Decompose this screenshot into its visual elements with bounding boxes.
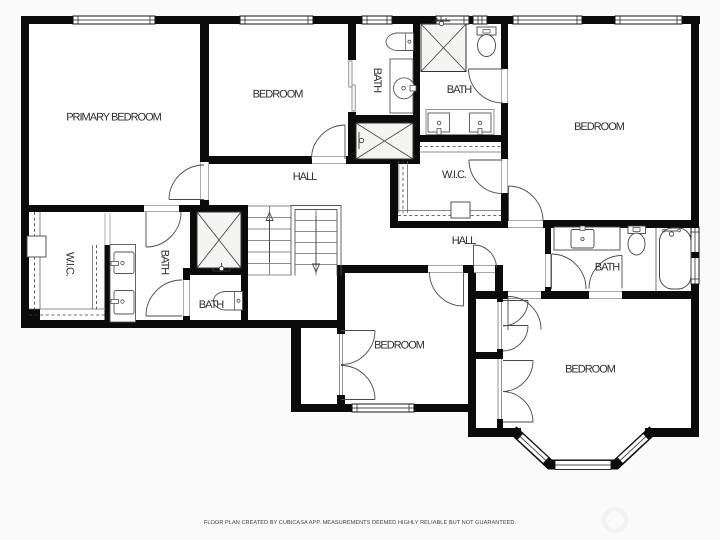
svg-text:BEDROOM: BEDROOM xyxy=(253,89,304,101)
svg-text:W.I.C.: W.I.C. xyxy=(442,169,467,181)
svg-text:HALL: HALL xyxy=(452,235,476,247)
svg-text:W.I.C.: W.I.C. xyxy=(64,252,76,277)
svg-text:BATH: BATH xyxy=(371,68,383,94)
svg-text:BATH: BATH xyxy=(199,299,225,311)
svg-text:BEDROOM: BEDROOM xyxy=(574,121,625,133)
svg-text:BEDROOM: BEDROOM xyxy=(565,364,616,376)
svg-text:BEDROOM: BEDROOM xyxy=(374,340,425,352)
svg-text:BATH: BATH xyxy=(447,84,473,96)
svg-text:PRIMARY BEDROOM: PRIMARY BEDROOM xyxy=(66,112,161,124)
svg-text:BATH: BATH xyxy=(595,262,621,274)
svg-text:BATH: BATH xyxy=(159,250,171,276)
svg-text:FLOOR PLAN CREATED BY CUBICASA: FLOOR PLAN CREATED BY CUBICASA APP. MEAS… xyxy=(204,520,517,526)
svg-text:HALL: HALL xyxy=(293,171,317,183)
